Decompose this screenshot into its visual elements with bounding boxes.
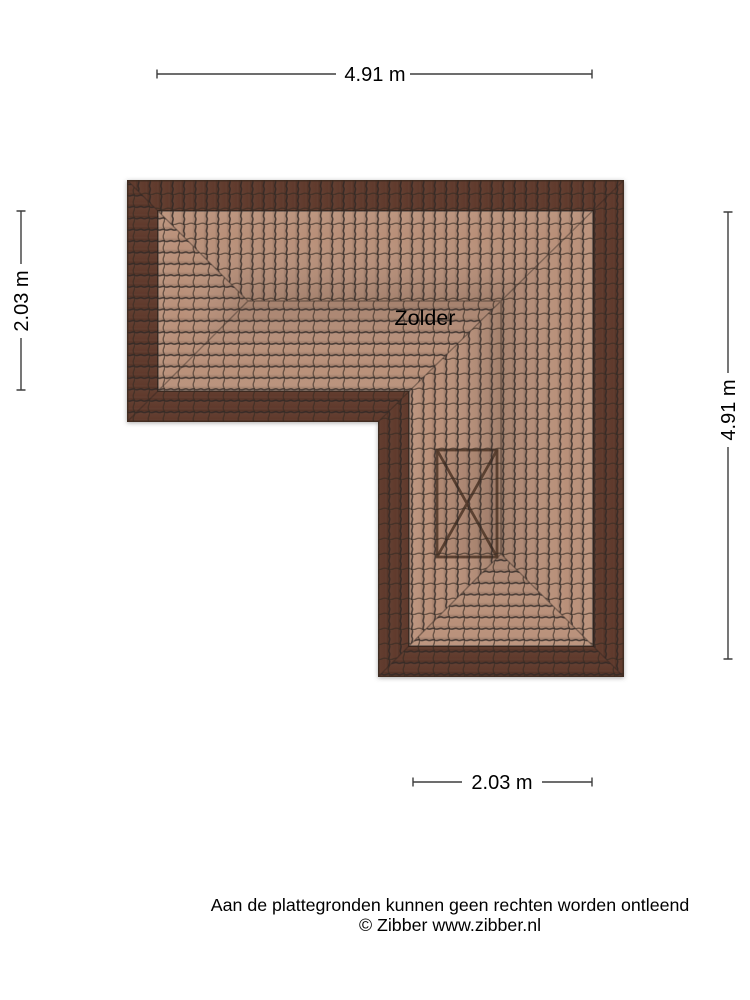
svg-text:Zolder: Zolder — [395, 306, 456, 330]
svg-text:Aan de plattegronden kunnen ge: Aan de plattegronden kunnen geen rechten… — [211, 895, 690, 915]
svg-text:2.03 m: 2.03 m — [11, 270, 33, 331]
svg-text:4.91 m: 4.91 m — [344, 64, 405, 86]
svg-text:© Zibber www.zibber.nl: © Zibber www.zibber.nl — [359, 915, 541, 935]
svg-text:4.91 m: 4.91 m — [718, 379, 740, 440]
svg-text:2.03 m: 2.03 m — [471, 772, 532, 794]
